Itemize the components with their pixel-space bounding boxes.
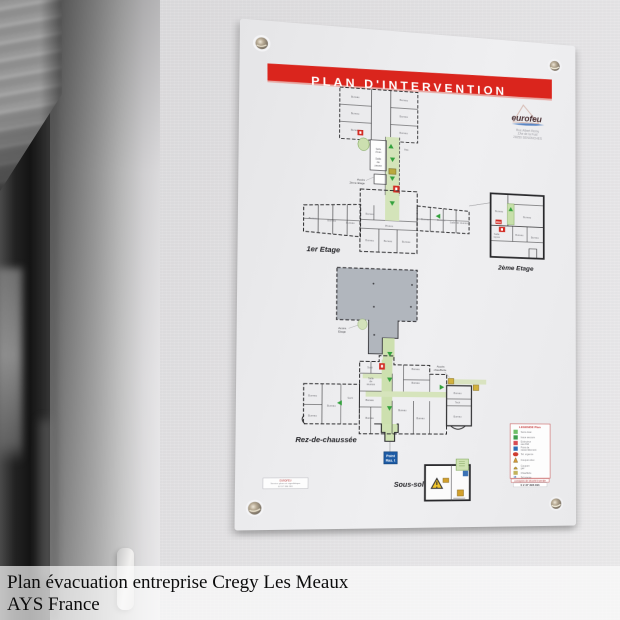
svg-text:pause: pause	[375, 165, 383, 168]
svg-text:18: 18	[513, 475, 516, 479]
svg-text:Bureau: Bureau	[412, 367, 421, 371]
svg-text:Bureau: Bureau	[421, 217, 430, 221]
svg-text:Issue secours: Issue secours	[521, 437, 536, 440]
svg-text:Bureau: Bureau	[437, 218, 446, 222]
svg-text:Salle de réunion: Salle de réunion	[450, 221, 469, 226]
svg-text:Bureau: Bureau	[416, 416, 425, 420]
svg-text:Service plans et signalétique: Service plans et signalétique	[271, 482, 301, 485]
svg-text:Bureau: Bureau	[531, 236, 539, 240]
svg-text:Rez-de-chaussée: Rez-de-chaussée	[295, 435, 356, 444]
svg-text:Bureau: Bureau	[400, 98, 409, 102]
svg-text:Bureau: Bureau	[384, 239, 393, 243]
svg-text:LEGENDE Plan: LEGENDE Plan	[519, 425, 541, 429]
svg-text:Bureau: Bureau	[308, 394, 317, 398]
svg-text:eurofeu: eurofeu	[512, 113, 543, 124]
svg-text:Sous-sol: Sous-sol	[394, 480, 425, 489]
svg-text:chaufferie: chaufferie	[434, 368, 447, 372]
svg-text:consignes de sécurité incendie: consignes de sécurité incendie	[514, 480, 546, 483]
svg-text:d'eau: d'eau	[375, 151, 381, 154]
svg-text:Tel. urgence: Tel. urgence	[521, 453, 534, 456]
svg-text:Bureau: Bureau	[309, 216, 318, 220]
svg-text:repos: repos	[494, 235, 501, 239]
svg-text:02 37 396 391: 02 37 396 391	[278, 486, 294, 488]
svg-text:Bureau: Bureau	[327, 404, 336, 408]
svg-text:1er Etage: 1er Etage	[306, 245, 340, 255]
svg-text:Bureau: Bureau	[365, 238, 374, 242]
svg-text:Asc.: Asc.	[404, 148, 409, 152]
svg-text:Bureau: Bureau	[366, 212, 375, 216]
svg-text:Salle: Salle	[375, 157, 381, 161]
svg-text:Sorti: Sorti	[347, 396, 353, 400]
svg-text:0 2 37 396 391: 0 2 37 396 391	[520, 483, 540, 487]
svg-text:Bureau: Bureau	[308, 414, 317, 418]
svg-text:Bureau: Bureau	[402, 240, 411, 244]
svg-text:Bureau: Bureau	[365, 416, 374, 420]
svg-text:EUROFEU: EUROFEU	[280, 479, 292, 482]
svg-text:28250 SENONCHES: 28250 SENONCHES	[513, 135, 542, 140]
svg-text:RIA: RIA	[496, 220, 502, 224]
svg-text:rassemblement: rassemblement	[521, 449, 537, 452]
svg-text:Ras. t: Ras. t	[386, 459, 396, 463]
svg-text:Tech: Tech	[455, 401, 461, 405]
svg-text:Sorti: Sorti	[367, 366, 373, 370]
svg-text:Bureau: Bureau	[412, 381, 421, 385]
svg-text:Bureau: Bureau	[346, 221, 355, 225]
svg-text:Bureau: Bureau	[351, 111, 360, 115]
svg-text:Bureau: Bureau	[495, 209, 504, 213]
svg-text:Bureau: Bureau	[515, 233, 523, 237]
svg-text:Photos: Photos	[385, 224, 394, 228]
svg-text:Bureau: Bureau	[454, 391, 462, 395]
svg-text:2ème Etage: 2ème Etage	[350, 181, 366, 186]
svg-text:de: de	[377, 160, 380, 164]
svg-text:Coupure élec.: Coupure élec.	[521, 459, 536, 462]
svg-text:Bureau: Bureau	[398, 408, 407, 412]
svg-text:Bureau: Bureau	[400, 115, 409, 119]
svg-text:Bureau: Bureau	[399, 131, 408, 135]
svg-text:Bureau: Bureau	[366, 398, 375, 402]
svg-text:Bureau: Bureau	[351, 95, 360, 99]
svg-text:réunion: réunion	[367, 382, 376, 386]
svg-text:2ème Etage: 2ème Etage	[497, 265, 533, 273]
svg-text:Etage: Etage	[338, 330, 346, 334]
svg-text:Point: Point	[386, 454, 395, 458]
svg-text:Bureau: Bureau	[327, 218, 336, 222]
svg-text:Sens évac.: Sens évac.	[521, 431, 533, 434]
svg-text:Chaufferie: Chaufferie	[521, 472, 532, 475]
svg-text:Bureau: Bureau	[523, 215, 531, 219]
svg-text:Bureau: Bureau	[454, 415, 462, 419]
